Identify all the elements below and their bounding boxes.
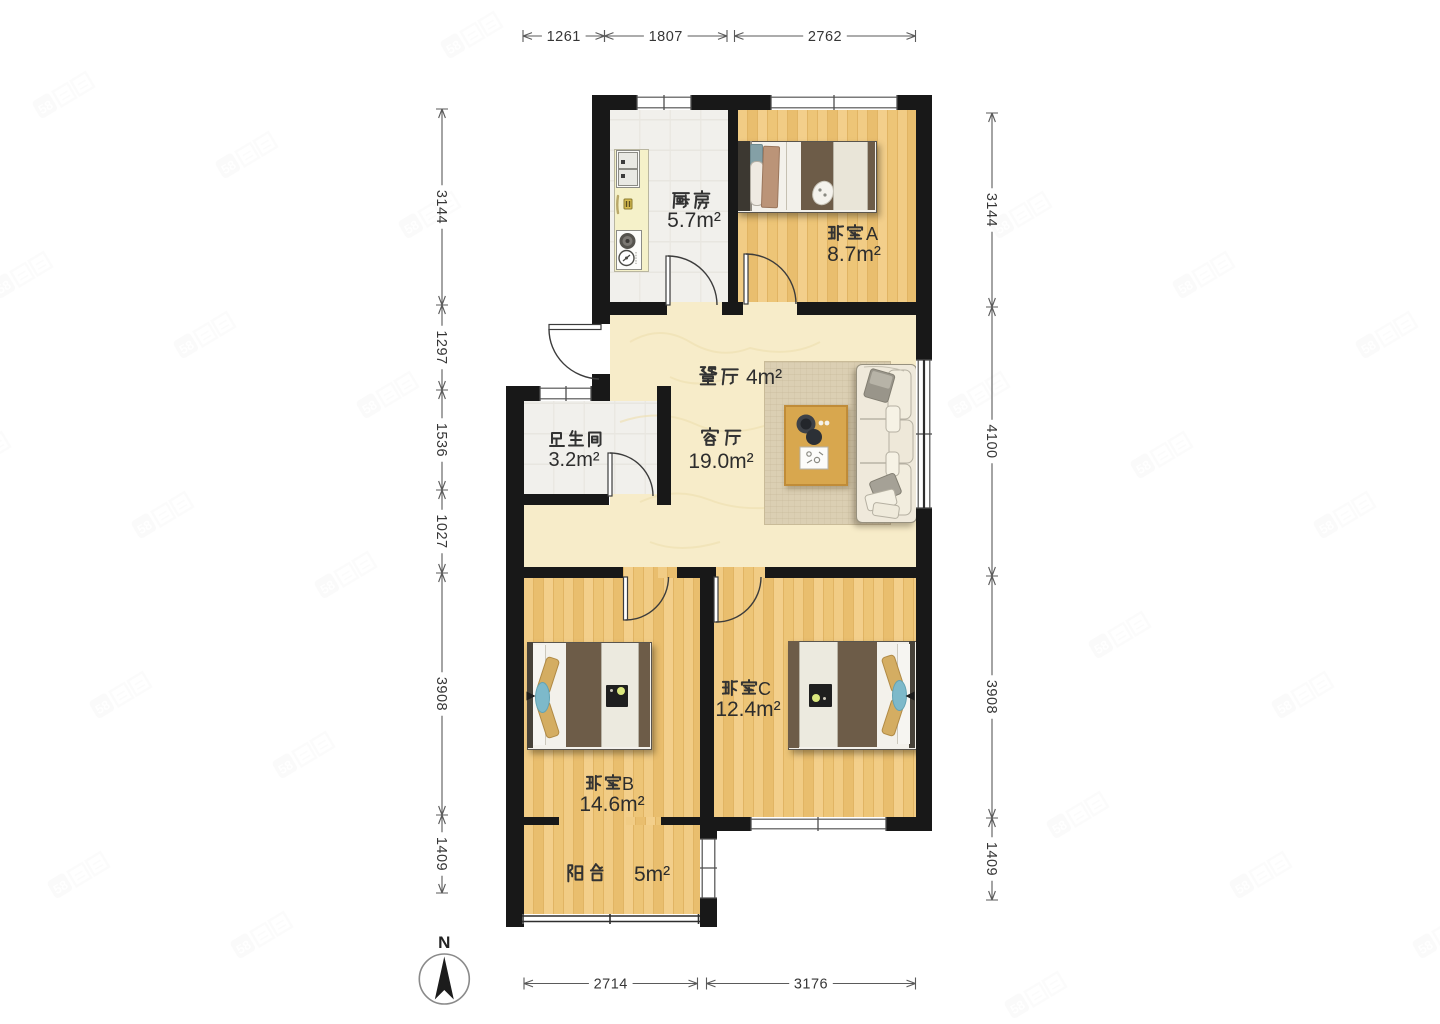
svg-text:5.7m²: 5.7m² (667, 209, 721, 232)
svg-text:1409: 1409 (433, 837, 449, 871)
svg-text:1261: 1261 (547, 29, 581, 45)
svg-text:3144: 3144 (433, 190, 449, 224)
svg-text:1409: 1409 (983, 842, 999, 876)
svg-text:1297: 1297 (433, 330, 449, 364)
svg-text:14.6m²: 14.6m² (579, 793, 644, 816)
svg-text:12.4m²: 12.4m² (715, 698, 780, 721)
svg-text:3908: 3908 (983, 680, 999, 714)
svg-text:B: B (622, 774, 634, 794)
svg-text:3176: 3176 (794, 977, 828, 993)
svg-text:2762: 2762 (808, 29, 842, 45)
svg-text:1027: 1027 (433, 514, 449, 548)
svg-text:5m²: 5m² (634, 863, 670, 886)
svg-text:N: N (438, 933, 450, 952)
svg-text:3908: 3908 (433, 677, 449, 711)
svg-text:1807: 1807 (649, 29, 683, 45)
svg-text:19.0m²: 19.0m² (688, 450, 753, 473)
svg-text:4m²: 4m² (746, 366, 782, 389)
svg-text:A: A (866, 224, 878, 244)
svg-text:1536: 1536 (433, 423, 449, 457)
svg-text:2714: 2714 (594, 977, 628, 993)
svg-text:8.7m²: 8.7m² (827, 243, 881, 266)
svg-text:4100: 4100 (983, 424, 999, 458)
svg-text:3144: 3144 (983, 193, 999, 227)
svg-text:C: C (758, 679, 771, 699)
svg-text:3.2m²: 3.2m² (548, 449, 599, 471)
